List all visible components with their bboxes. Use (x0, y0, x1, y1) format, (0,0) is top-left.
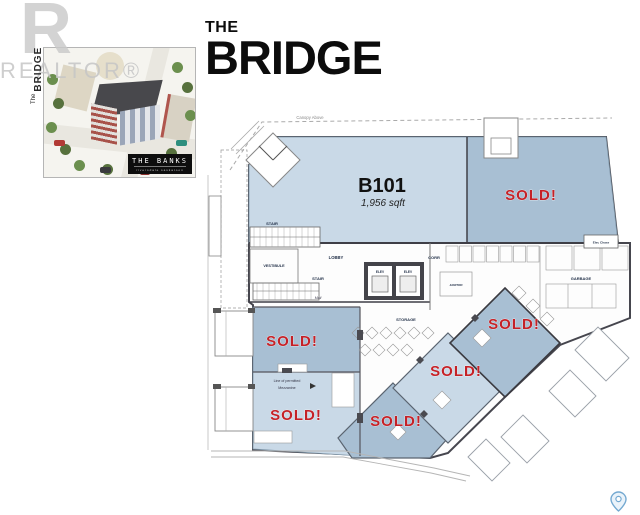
page-title: THE BRIDGE (205, 20, 382, 79)
realtor-watermark-text: REALTOR® (0, 58, 142, 84)
vertical-brand: TheBRIDGE (28, 47, 46, 104)
elevator-car (372, 276, 388, 292)
unit-area-label: 1,956 sqft (361, 198, 406, 209)
janitor-label: JANITOR (449, 283, 463, 287)
wall-tick (248, 308, 255, 313)
title-bridge: BRIDGE (205, 36, 382, 79)
storefront-door (254, 431, 292, 443)
wall-tick (213, 384, 221, 389)
bay-window (215, 387, 253, 431)
sold-label: SOLD! (430, 363, 482, 380)
map-pin-icon (610, 491, 627, 512)
mezzanine-stair (332, 373, 354, 407)
lobby-label: LOBBY (329, 255, 344, 260)
elevator-label: ELEV (404, 270, 413, 274)
sold-label: SOLD! (270, 407, 322, 424)
elec-chase-label: Elec Chase (593, 241, 610, 245)
sold-label: SOLD! (505, 187, 557, 204)
wall-tick (248, 384, 255, 389)
unit-id-label: B101 (358, 175, 406, 197)
door-tick (357, 413, 363, 423)
vestibule-label: VESTIBULE (263, 264, 285, 268)
mezzanine-note-2: Mezzanine (278, 386, 295, 390)
canopy-label: Canopy Above (296, 115, 324, 120)
vertical-brand-the: The (31, 94, 37, 104)
mail-label: Mail (315, 296, 322, 300)
door-tick (357, 330, 363, 340)
stair-label: STAIR (312, 276, 324, 281)
stair-label: STAIR (266, 221, 278, 226)
roof-access-inner (491, 138, 511, 154)
canopy-strip (221, 150, 247, 308)
door-tick (282, 368, 292, 373)
elevator-label: ELEV (376, 270, 385, 274)
storage-label: STORAGE (396, 317, 416, 322)
garbage-label: GARBAGE (571, 276, 592, 281)
wall-tick (213, 308, 221, 313)
vertical-brand-name: BRIDGE (33, 47, 44, 92)
planter (209, 196, 221, 256)
sold-label: SOLD! (488, 316, 540, 333)
sold-label: SOLD! (370, 413, 422, 430)
mezzanine-note-1: Line of permitted (274, 379, 301, 383)
sold-label: SOLD! (266, 333, 318, 350)
elevator-car (400, 276, 416, 292)
corridor-label: CORR (428, 255, 440, 260)
bay-window (215, 311, 253, 356)
